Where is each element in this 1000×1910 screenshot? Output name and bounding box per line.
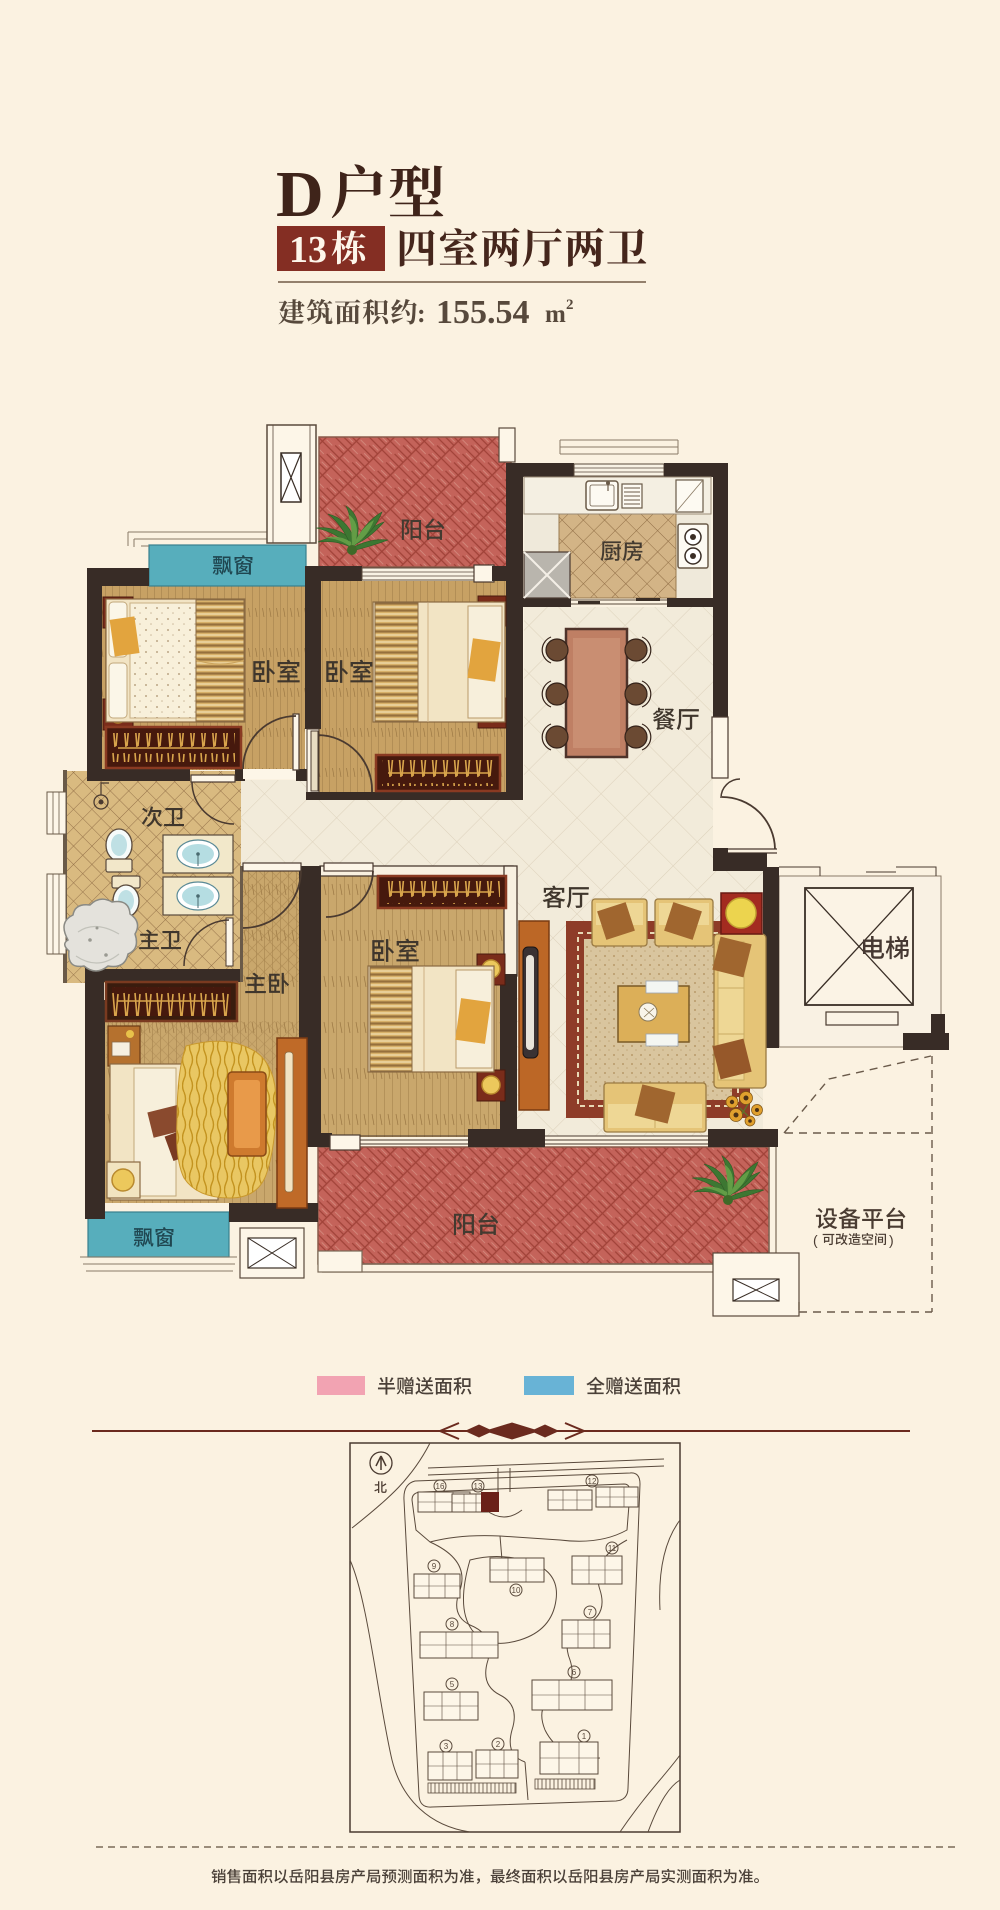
svg-text:2: 2	[496, 1740, 501, 1749]
svg-text:): )	[889, 1232, 894, 1248]
svg-text:12: 12	[588, 1477, 597, 1486]
svg-text:13: 13	[289, 229, 327, 271]
svg-text:7: 7	[588, 1608, 593, 1617]
svg-text::: :	[417, 299, 426, 328]
svg-text:5: 5	[450, 1680, 455, 1689]
svg-text:1: 1	[582, 1732, 587, 1741]
svg-text:16: 16	[436, 1482, 445, 1491]
svg-text:11: 11	[608, 1544, 617, 1553]
svg-text:D: D	[276, 158, 324, 231]
svg-text:13: 13	[474, 1482, 483, 1491]
svg-text:6: 6	[572, 1668, 577, 1677]
svg-text:9: 9	[432, 1562, 437, 1571]
svg-text:(: (	[813, 1232, 818, 1248]
svg-text:m: m	[545, 301, 566, 328]
svg-text:2: 2	[566, 297, 574, 313]
svg-text:8: 8	[450, 1620, 455, 1629]
svg-text:155.54: 155.54	[436, 294, 530, 331]
svg-text:10: 10	[512, 1586, 521, 1595]
svg-text:3: 3	[444, 1742, 449, 1751]
